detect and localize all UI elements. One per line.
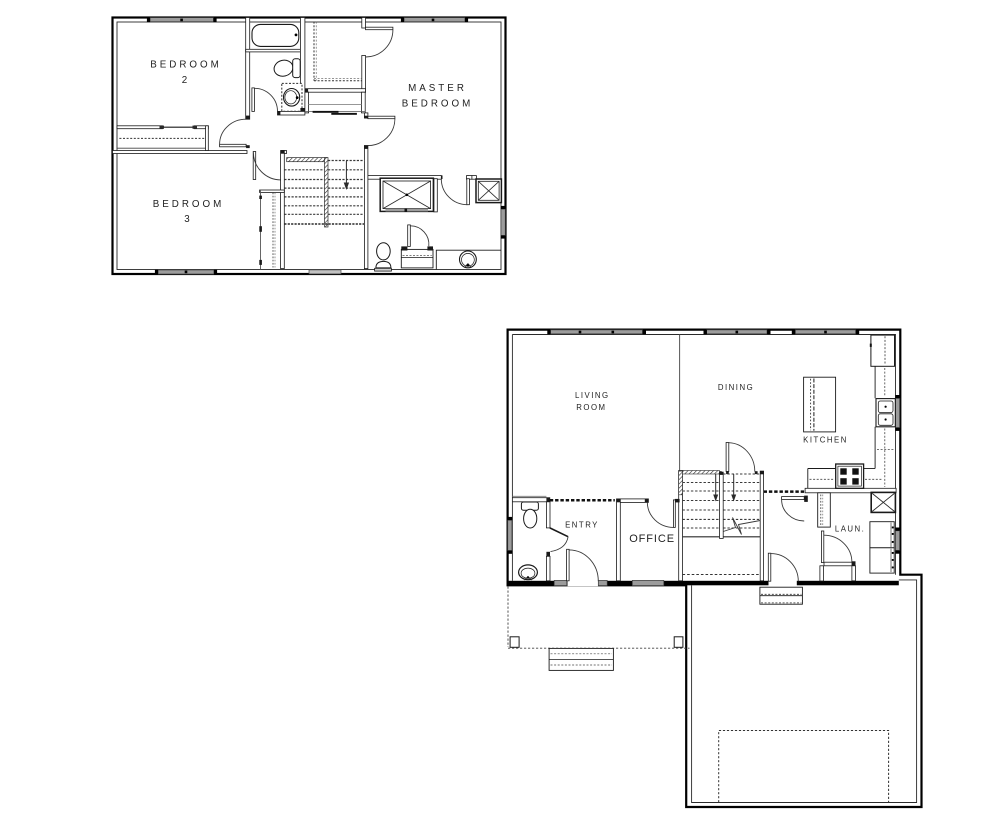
- svg-text:2: 2: [182, 75, 190, 86]
- svg-text:LAUN.: LAUN.: [835, 525, 865, 534]
- svg-text:BEDROOM: BEDROOM: [150, 60, 222, 71]
- svg-text:ENTRY: ENTRY: [565, 520, 599, 529]
- svg-text:KITCHEN: KITCHEN: [803, 435, 848, 444]
- svg-text:3: 3: [184, 214, 192, 225]
- svg-text:MASTER: MASTER: [408, 83, 467, 94]
- svg-text:BEDROOM: BEDROOM: [402, 98, 474, 109]
- svg-text:BEDROOM: BEDROOM: [153, 199, 225, 210]
- svg-text:DINING: DINING: [718, 383, 754, 392]
- svg-text:LIVING: LIVING: [575, 391, 610, 400]
- svg-text:ROOM: ROOM: [576, 403, 606, 412]
- svg-text:OFFICE: OFFICE: [629, 533, 675, 545]
